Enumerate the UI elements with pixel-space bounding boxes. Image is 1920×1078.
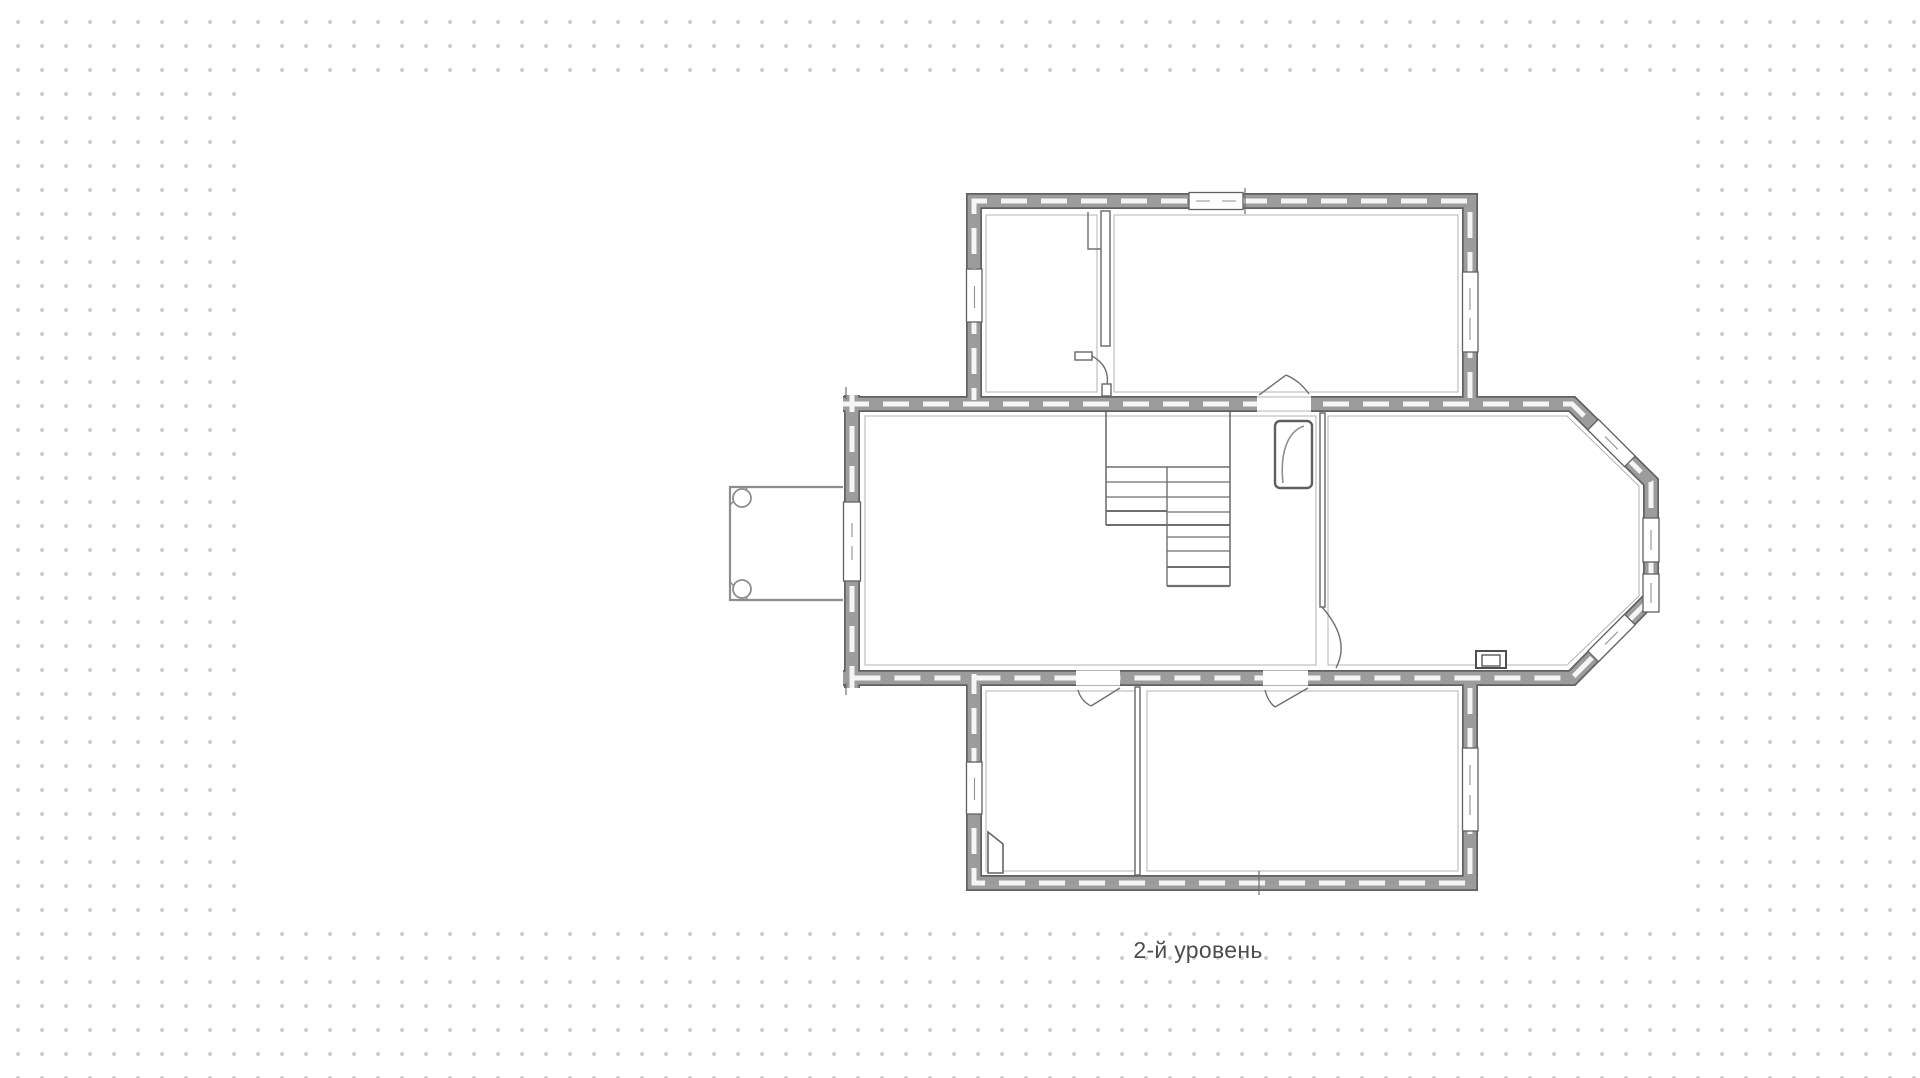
window-bottom-wing-east	[1463, 748, 1479, 831]
chimney-symbol	[988, 832, 1003, 873]
door-hall-partition	[1322, 607, 1341, 668]
drawing-canvas[interactable]: 2-й уровень	[238, 84, 1688, 912]
wall-insulation-dashes	[843, 201, 1651, 883]
balcony-post	[733, 580, 751, 598]
window-bay-east-lower	[1643, 574, 1659, 612]
windows	[844, 193, 1660, 832]
door-top-wing-partition	[1075, 352, 1111, 396]
wall-junction-ticks	[846, 188, 1259, 895]
window-top-wing-east	[1463, 272, 1479, 352]
balcony-door	[844, 502, 861, 581]
app-background: { "canvas": { "background": "#ffffff", "…	[0, 0, 1920, 1078]
balcony	[730, 487, 843, 600]
electrical-panel-symbol	[1476, 651, 1506, 668]
window-top-wing-west	[967, 269, 983, 322]
staircase	[1106, 412, 1230, 586]
partition-walls	[1088, 211, 1325, 875]
balcony-post	[733, 489, 751, 507]
window-bay-east-upper	[1643, 518, 1659, 562]
plan-caption: 2-й уровень	[998, 937, 1398, 964]
floor-plan-drawing	[678, 164, 1718, 934]
exterior-walls	[843, 201, 1651, 883]
door-leaf-symbol	[1275, 421, 1312, 488]
window-bottom-wing-west	[967, 762, 983, 814]
window-top-wing-north	[1189, 193, 1243, 210]
plan-symbols	[846, 188, 1506, 895]
